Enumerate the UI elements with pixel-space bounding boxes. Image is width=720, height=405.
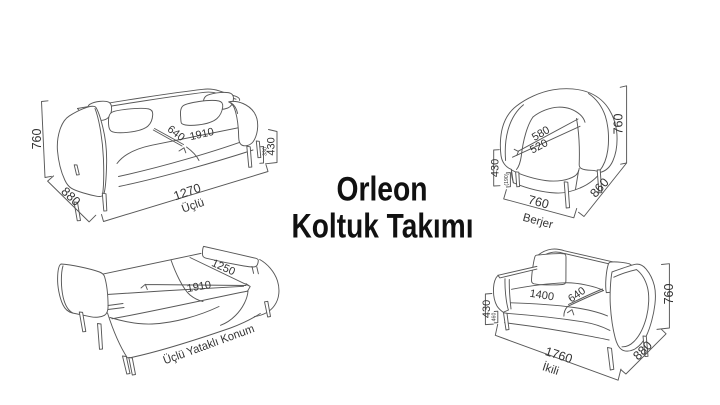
svg-text:760: 760 <box>662 284 676 305</box>
svg-text:330: 330 <box>263 147 269 156</box>
svg-text:1400: 1400 <box>529 288 555 304</box>
svg-text:Orleon: Orleon <box>337 171 428 209</box>
svg-text:İkili: İkili <box>541 360 561 378</box>
svg-text:640: 640 <box>165 123 187 144</box>
svg-text:Koltuk Takımı: Koltuk Takımı <box>292 208 474 246</box>
svg-text:Berjer: Berjer <box>521 212 554 232</box>
svg-text:640: 640 <box>566 285 588 305</box>
svg-text:760: 760 <box>612 114 626 135</box>
svg-text:460: 460 <box>492 313 498 322</box>
svg-text:760: 760 <box>30 129 44 150</box>
svg-text:430: 430 <box>489 159 501 177</box>
svg-text:760: 760 <box>527 193 551 212</box>
svg-text:1910: 1910 <box>189 126 216 143</box>
svg-text:(190): (190) <box>504 173 510 185</box>
